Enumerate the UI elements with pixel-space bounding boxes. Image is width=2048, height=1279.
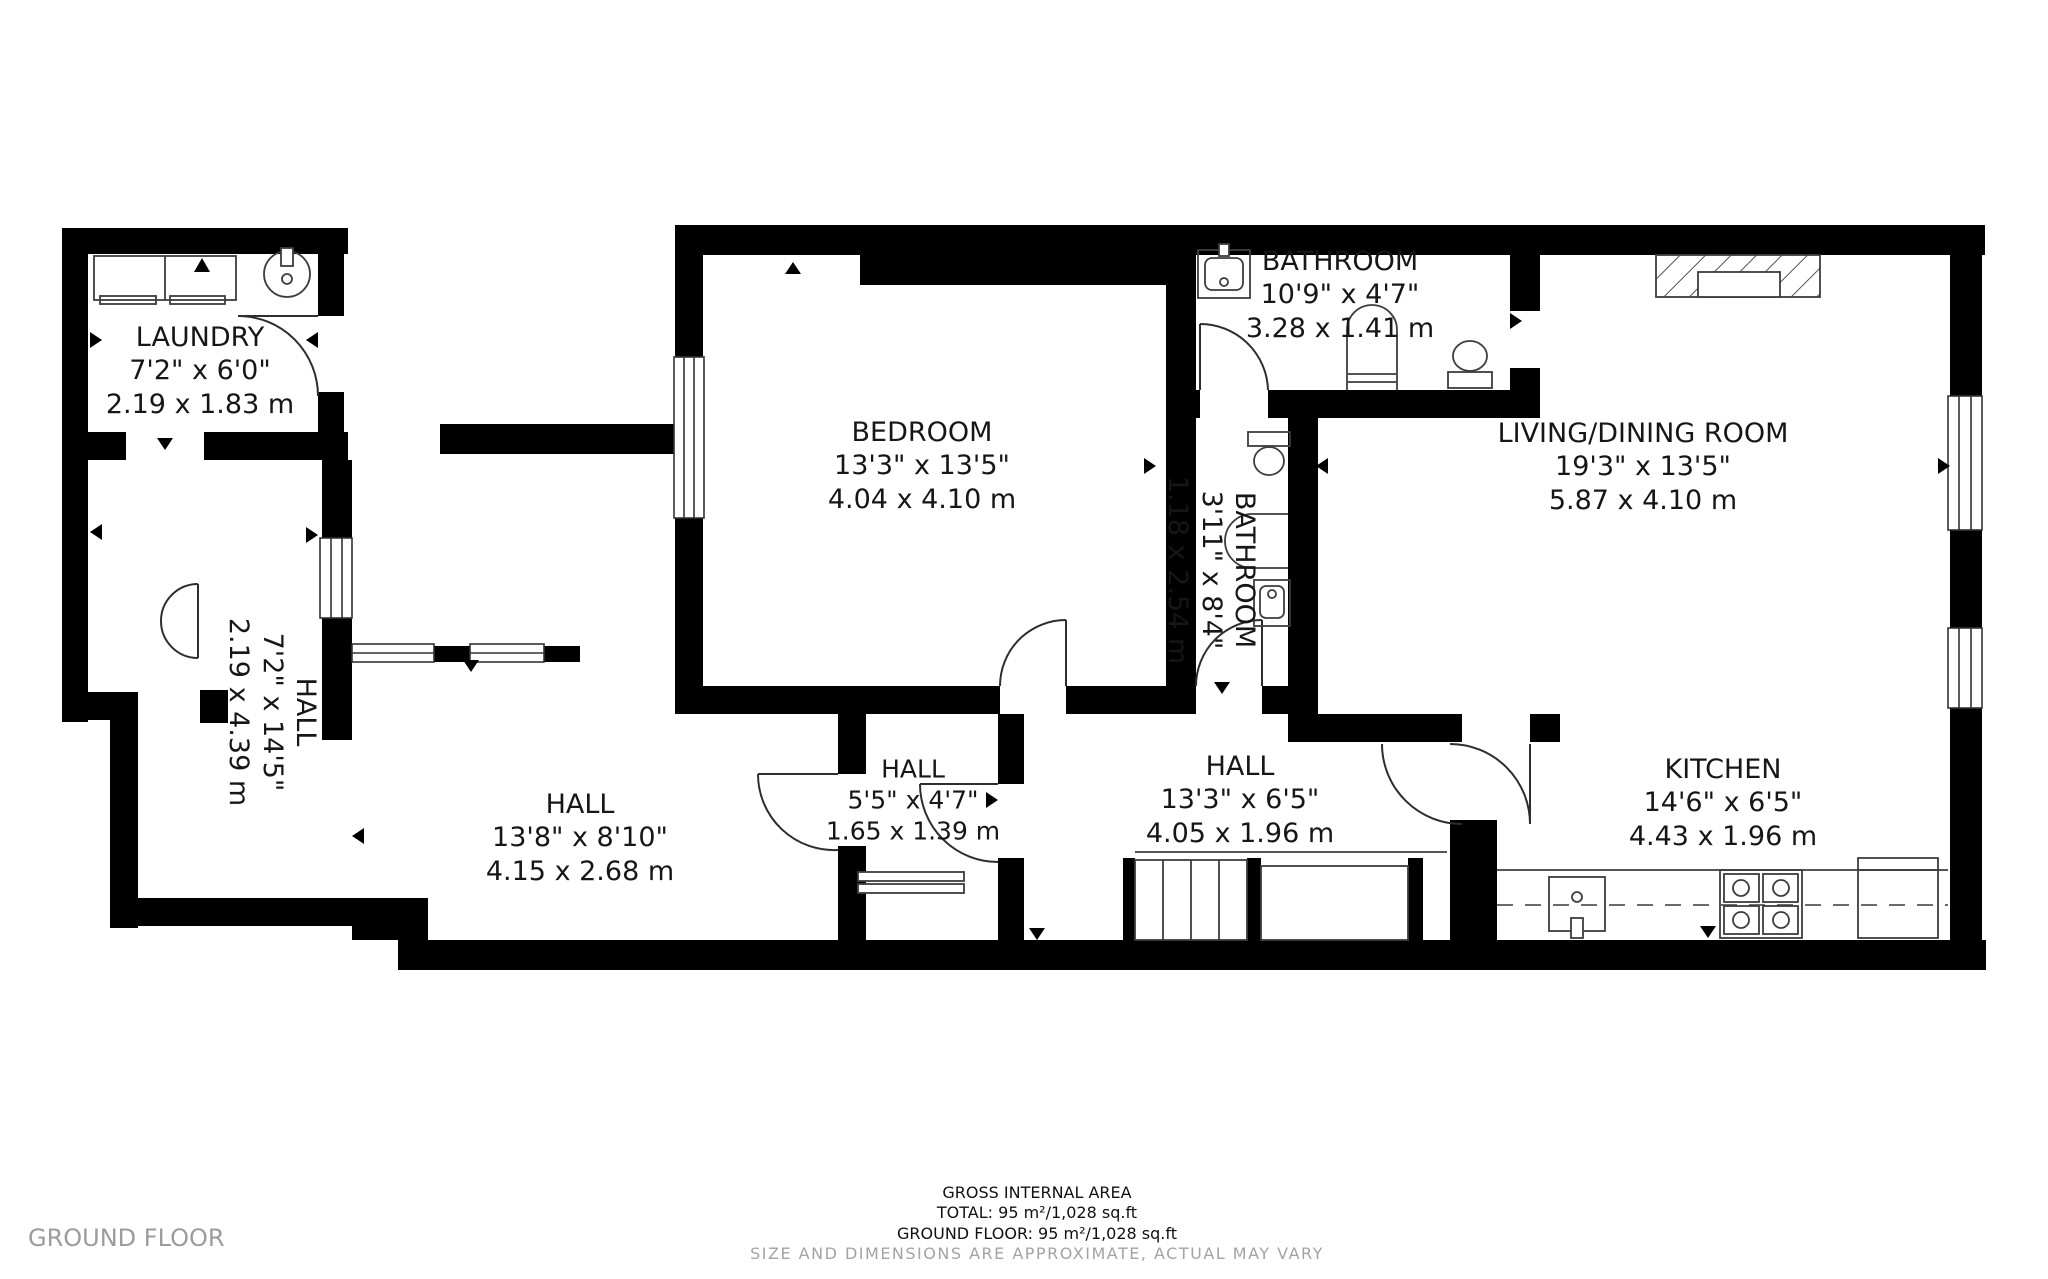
washer-dryer-icon <box>94 256 236 304</box>
room-dim-imperial: 13'3" x 13'5" <box>828 449 1016 482</box>
room-label-bathroom-mid: BATHROOM 3'11" x 8'4" 1.18 x 2.54 m <box>1161 476 1261 664</box>
room-name: HALL <box>486 788 674 821</box>
window-icon-living-east-2 <box>1948 628 1982 708</box>
kitchen-counter <box>1497 870 1948 905</box>
room-name: HALL <box>289 618 322 806</box>
room-dim-metric: 2.19 x 4.39 m <box>222 618 255 806</box>
room-label-bedroom: BEDROOM 13'3" x 13'5" 4.04 x 4.10 m <box>828 416 1016 516</box>
room-dim-metric: 4.04 x 4.10 m <box>828 483 1016 516</box>
room-name: BEDROOM <box>828 416 1016 449</box>
entry-steps-icon <box>858 872 964 893</box>
room-dim-imperial: 13'3" x 6'5" <box>1146 783 1334 816</box>
room-name: HALL <box>1146 750 1334 783</box>
room-dim-metric: 1.18 x 2.54 m <box>1161 476 1194 664</box>
door-arc-kitchen <box>1382 744 1530 824</box>
room-dim-metric: 1.65 x 1.39 m <box>826 816 1000 847</box>
fireplace-icon <box>1656 255 1820 297</box>
room-name: HALL <box>826 754 1000 785</box>
kitchen-unit-icon <box>1858 858 1938 938</box>
room-label-hall-small: HALL 5'5" x 4'7" 1.65 x 1.39 m <box>826 754 1000 847</box>
gross-area-heading: GROSS INTERNAL AREA <box>750 1184 1324 1202</box>
laundry-sink-icon <box>264 248 310 297</box>
toilet-icon-top <box>1448 341 1492 388</box>
window-icon-hall-top-2 <box>470 644 544 662</box>
room-label-bathroom-top: BATHROOM 10'9" x 4'7" 3.28 x 1.41 m <box>1246 245 1434 345</box>
room-dim-metric: 4.43 x 1.96 m <box>1629 820 1817 853</box>
room-dim-imperial: 13'8" x 8'10" <box>486 821 674 854</box>
door-arc-double-closet <box>161 584 198 658</box>
room-name: KITCHEN <box>1629 753 1817 786</box>
kitchen-sink-icon <box>1549 877 1605 938</box>
room-name: BATHROOM <box>1228 476 1261 664</box>
closet-outline <box>1261 866 1408 940</box>
room-label-hall-west: HALL 7'2" x 14'5" 2.19 x 4.39 m <box>222 618 322 806</box>
dimensions-disclaimer: SIZE AND DIMENSIONS ARE APPROXIMATE, ACT… <box>750 1245 1324 1263</box>
room-dim-imperial: 7'2" x 14'5" <box>255 618 288 806</box>
ground-floor-area: GROUND FLOOR: 95 m²/1,028 sq.ft <box>750 1225 1324 1243</box>
room-name: LAUNDRY <box>106 321 294 354</box>
room-label-living: LIVING/DINING ROOM 19'3" x 13'5" 5.87 x … <box>1498 417 1789 517</box>
total-area: TOTAL: 95 m²/1,028 sq.ft <box>750 1204 1324 1222</box>
room-dim-imperial: 5'5" x 4'7" <box>826 785 1000 816</box>
door-arc-bedroom <box>1000 620 1066 686</box>
window-icon-living-east-1 <box>1948 396 1982 530</box>
room-label-hall-main: HALL 13'8" x 8'10" 4.15 x 2.68 m <box>486 788 674 888</box>
room-label-hall-mid: HALL 13'3" x 6'5" 4.05 x 1.96 m <box>1146 750 1334 850</box>
floorplan-page: LAUNDRY 7'2" x 6'0" 2.19 x 1.83 m HALL 7… <box>0 0 2048 1279</box>
room-name: BATHROOM <box>1246 245 1434 278</box>
room-label-kitchen: KITCHEN 14'6" x 6'5" 4.43 x 1.96 m <box>1629 753 1817 853</box>
room-dim-imperial: 10'9" x 4'7" <box>1246 278 1434 311</box>
floor-name-label: GROUND FLOOR <box>28 1224 225 1252</box>
room-name: LIVING/DINING ROOM <box>1498 417 1789 450</box>
room-dim-imperial: 19'3" x 13'5" <box>1498 450 1789 483</box>
stove-icon <box>1720 870 1802 938</box>
room-label-laundry: LAUNDRY 7'2" x 6'0" 2.19 x 1.83 m <box>106 321 294 421</box>
room-dim-metric: 5.87 x 4.10 m <box>1498 484 1789 517</box>
window-icon-corridor <box>320 538 352 618</box>
area-summary: GROSS INTERNAL AREA TOTAL: 95 m²/1,028 s… <box>750 1184 1324 1266</box>
toilet-icon-mid <box>1248 432 1290 475</box>
room-dim-metric: 4.15 x 2.68 m <box>486 855 674 888</box>
room-dim-imperial: 3'11" x 8'4" <box>1194 476 1227 664</box>
room-dim-imperial: 7'2" x 6'0" <box>106 354 294 387</box>
window-icon-bedroom <box>674 357 704 518</box>
room-dim-metric: 4.05 x 1.96 m <box>1146 817 1334 850</box>
window-icon-hall-top-1 <box>352 644 434 662</box>
room-dim-metric: 3.28 x 1.41 m <box>1246 312 1434 345</box>
room-dim-metric: 2.19 x 1.83 m <box>106 388 294 421</box>
room-dim-imperial: 14'6" x 6'5" <box>1629 786 1817 819</box>
